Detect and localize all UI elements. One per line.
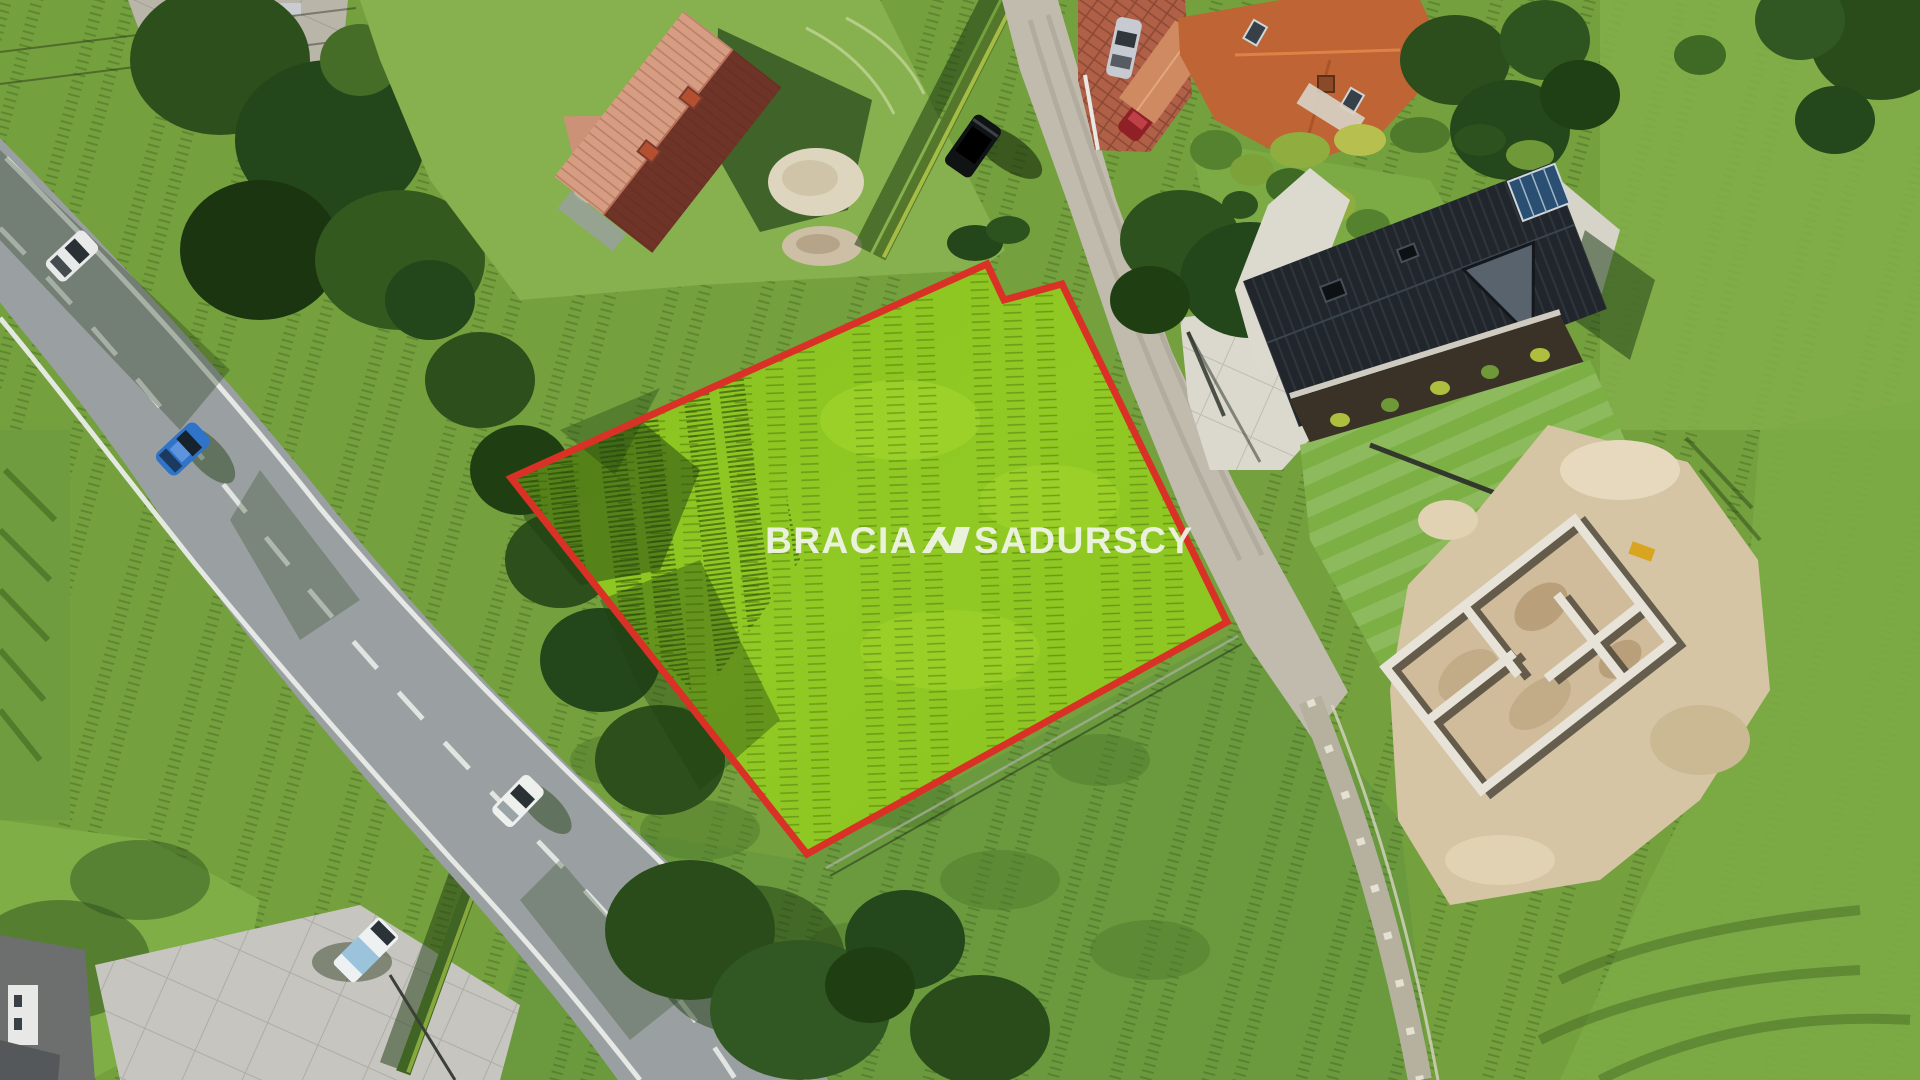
watermark-text-left: BRACIA xyxy=(765,520,918,561)
orchard-rows xyxy=(0,430,70,820)
watermark: BRACIA SADURSCY xyxy=(765,520,1194,561)
bush xyxy=(986,216,1030,244)
chimney xyxy=(1318,76,1334,92)
aerial-photo: BRACIA SADURSCY xyxy=(0,0,1920,1080)
watermark-text-right: SADURSCY xyxy=(974,520,1194,561)
building-facade xyxy=(8,985,38,1045)
